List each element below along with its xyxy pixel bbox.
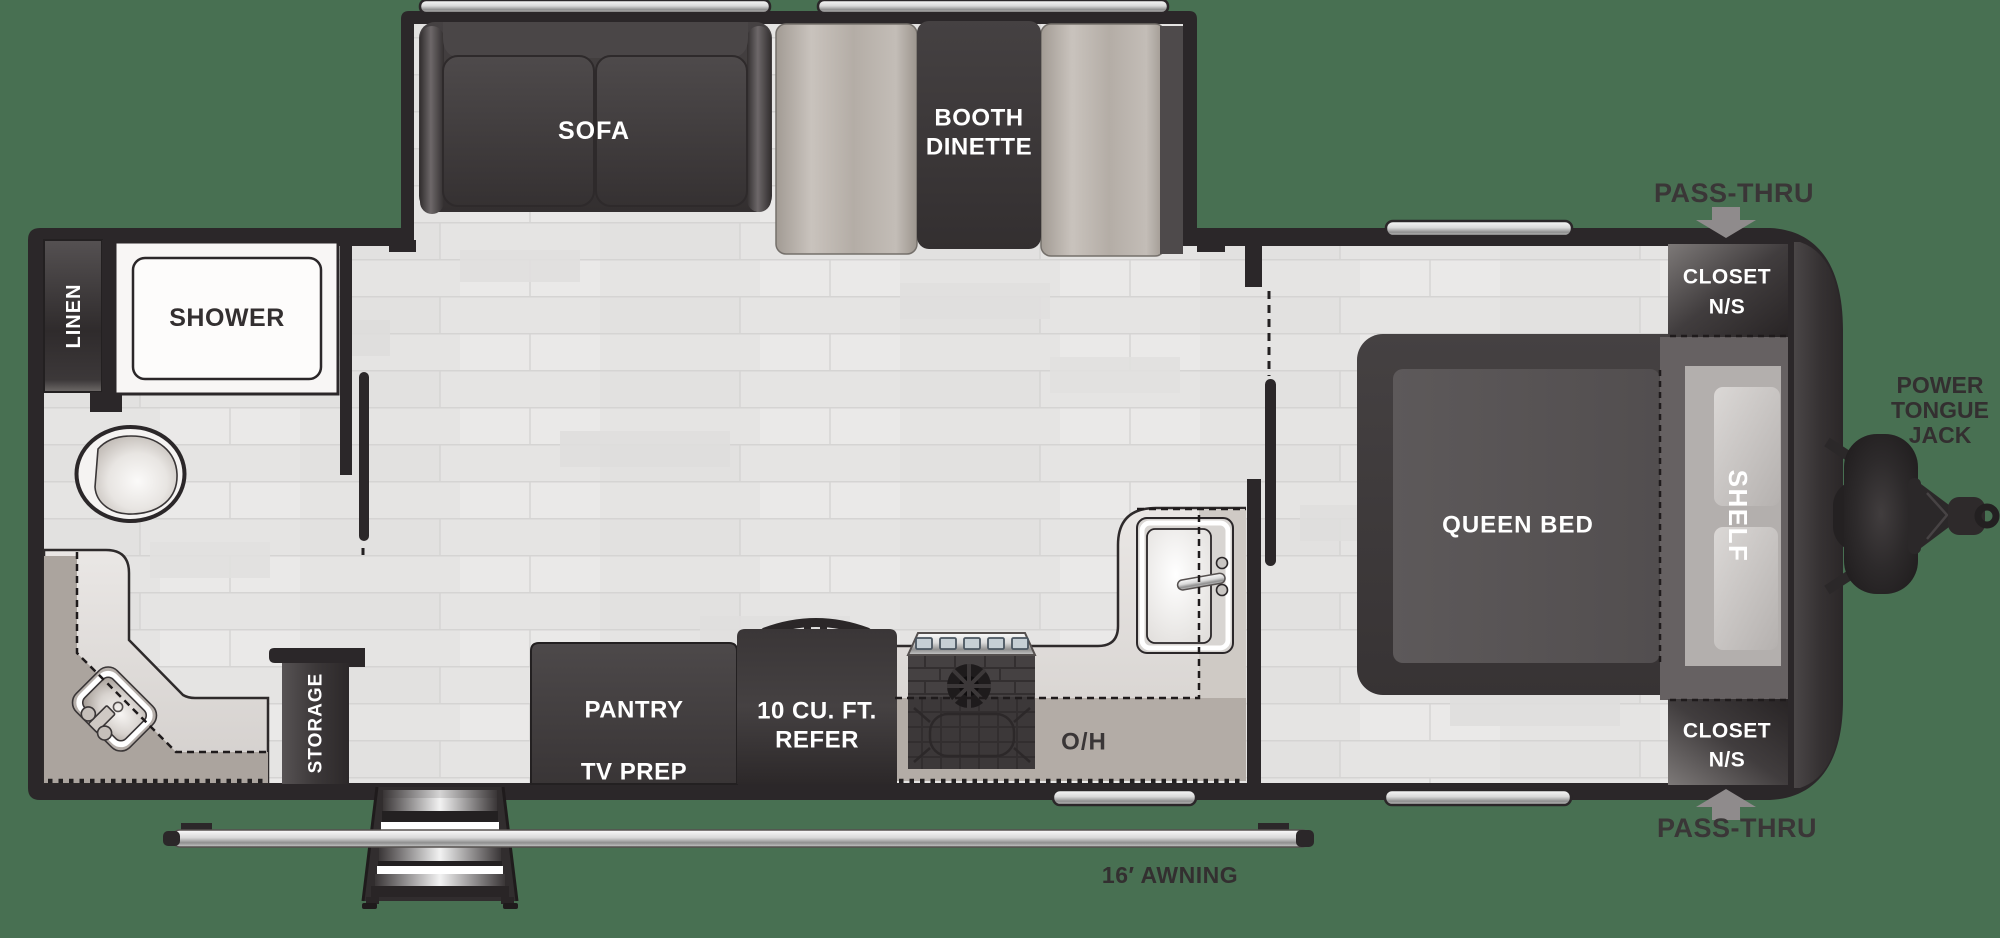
svg-text:BOOTH: BOOTH — [934, 105, 1023, 132]
svg-text:STORAGE: STORAGE — [306, 673, 327, 774]
svg-text:SHOWER: SHOWER — [169, 304, 285, 332]
svg-text:TV PREP: TV PREP — [581, 759, 687, 786]
svg-text:REFER: REFER — [775, 727, 859, 754]
svg-text:POWER: POWER — [1897, 372, 1984, 398]
svg-text:PASS-THRU: PASS-THRU — [1657, 813, 1817, 843]
svg-text:PASS-THRU: PASS-THRU — [1654, 178, 1814, 208]
svg-text:N/S: N/S — [1709, 296, 1746, 319]
svg-text:QUEEN BED: QUEEN BED — [1442, 512, 1594, 539]
svg-text:PANTRY: PANTRY — [585, 697, 684, 724]
svg-text:10 CU. FT.: 10 CU. FT. — [757, 698, 877, 725]
svg-text:SOFA: SOFA — [558, 117, 630, 145]
svg-text:DINETTE: DINETTE — [926, 134, 1032, 161]
svg-text:CLOSET: CLOSET — [1683, 266, 1771, 289]
svg-text:TONGUE: TONGUE — [1891, 397, 1989, 423]
svg-text:O/H: O/H — [1061, 729, 1107, 756]
svg-text:LINEN: LINEN — [63, 284, 85, 349]
svg-text:N/S: N/S — [1709, 749, 1746, 772]
svg-text:JACK: JACK — [1909, 422, 1972, 448]
svg-text:SHELF: SHELF — [1723, 470, 1753, 563]
svg-text:CLOSET: CLOSET — [1683, 720, 1771, 743]
svg-text:16′ AWNING: 16′ AWNING — [1102, 862, 1238, 888]
